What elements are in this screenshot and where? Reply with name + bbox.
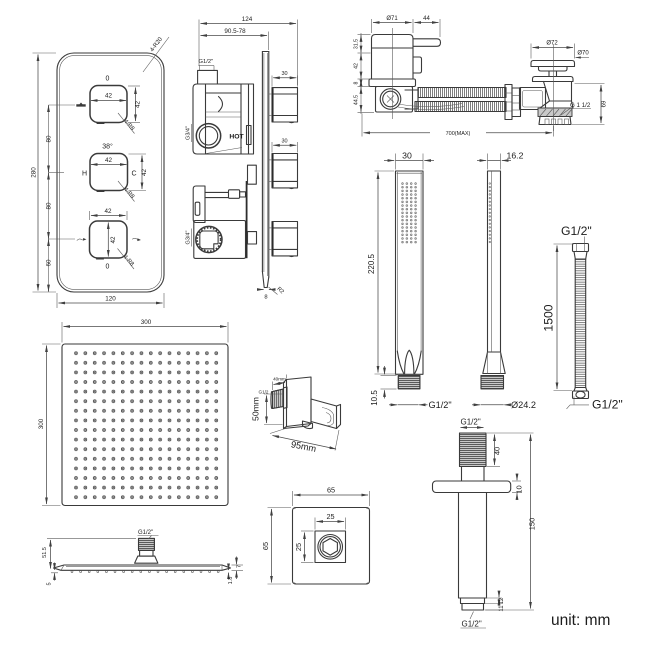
svg-text:1.8: 1.8: [228, 577, 234, 585]
svg-text:16.2: 16.2: [507, 150, 524, 160]
svg-text:40mm: 40mm: [273, 377, 286, 382]
svg-text:44: 44: [423, 16, 430, 22]
svg-text:G1/2": G1/2": [429, 400, 452, 410]
svg-text:80: 80: [46, 135, 53, 143]
svg-text:42: 42: [105, 93, 113, 100]
svg-text:50mm: 50mm: [251, 397, 261, 421]
svg-text:C: C: [131, 171, 136, 178]
svg-text:700(MAX): 700(MAX): [446, 131, 471, 137]
svg-text:G3/4": G3/4": [186, 231, 192, 245]
svg-text:G1/2": G1/2": [462, 620, 482, 629]
svg-text:Ø70: Ø70: [577, 51, 589, 57]
svg-text:1500: 1500: [542, 304, 556, 331]
svg-text:69: 69: [602, 100, 608, 107]
svg-text:HOT: HOT: [229, 134, 244, 141]
svg-text:220.5: 220.5: [367, 253, 376, 274]
svg-text:42: 42: [135, 101, 142, 109]
svg-text:280: 280: [31, 167, 38, 178]
svg-text:Ø24.2: Ø24.2: [511, 400, 536, 410]
svg-text:31.5: 31.5: [354, 39, 360, 49]
svg-text:65: 65: [327, 486, 335, 495]
svg-text:12: 12: [499, 597, 505, 604]
svg-text:40: 40: [493, 447, 502, 455]
svg-text:G1/2": G1/2": [199, 59, 214, 65]
svg-text:Ø72: Ø72: [546, 41, 558, 47]
svg-text:11: 11: [499, 605, 505, 612]
svg-text:60: 60: [46, 259, 53, 267]
svg-text:300: 300: [38, 418, 45, 429]
svg-text:150: 150: [528, 518, 537, 531]
svg-text:124: 124: [242, 16, 253, 23]
svg-text:300: 300: [141, 319, 152, 326]
svg-text:G1/2": G1/2": [461, 418, 481, 427]
svg-text:42: 42: [141, 169, 148, 177]
svg-text:42: 42: [105, 157, 113, 164]
svg-text:7: 7: [237, 565, 243, 568]
svg-text:G 1 1/2: G 1 1/2: [570, 102, 591, 109]
svg-text:10.5: 10.5: [370, 390, 379, 406]
svg-text:G1/2": G1/2": [592, 398, 623, 412]
svg-text:30: 30: [281, 139, 287, 145]
svg-text:25: 25: [326, 512, 334, 521]
svg-text:0: 0: [106, 76, 110, 83]
svg-text:8: 8: [264, 295, 267, 301]
svg-text:80: 80: [46, 202, 53, 210]
svg-text:42: 42: [104, 208, 112, 215]
svg-text:Ø71: Ø71: [386, 16, 398, 22]
svg-text:unit: mm: unit: mm: [551, 612, 610, 629]
svg-text:0: 0: [106, 264, 110, 271]
svg-text:42: 42: [110, 236, 117, 244]
svg-text:G1/2": G1/2": [138, 530, 153, 536]
svg-text:51.5: 51.5: [42, 547, 48, 558]
svg-text:10: 10: [515, 485, 524, 493]
svg-text:38°: 38°: [102, 143, 113, 151]
svg-text:44.5: 44.5: [354, 95, 360, 105]
svg-text:H: H: [82, 171, 87, 178]
svg-text:30: 30: [281, 71, 287, 77]
svg-text:25: 25: [294, 543, 303, 551]
svg-text:8: 8: [354, 81, 360, 84]
svg-text:120: 120: [105, 296, 116, 303]
svg-text:G3/4": G3/4": [186, 126, 192, 140]
svg-text:5: 5: [47, 582, 53, 585]
svg-text:65: 65: [261, 542, 270, 550]
svg-text:90.5-78: 90.5-78: [224, 28, 246, 35]
svg-text:42: 42: [354, 63, 360, 69]
svg-text:30: 30: [402, 150, 412, 160]
svg-text:G1/2": G1/2": [561, 224, 592, 238]
